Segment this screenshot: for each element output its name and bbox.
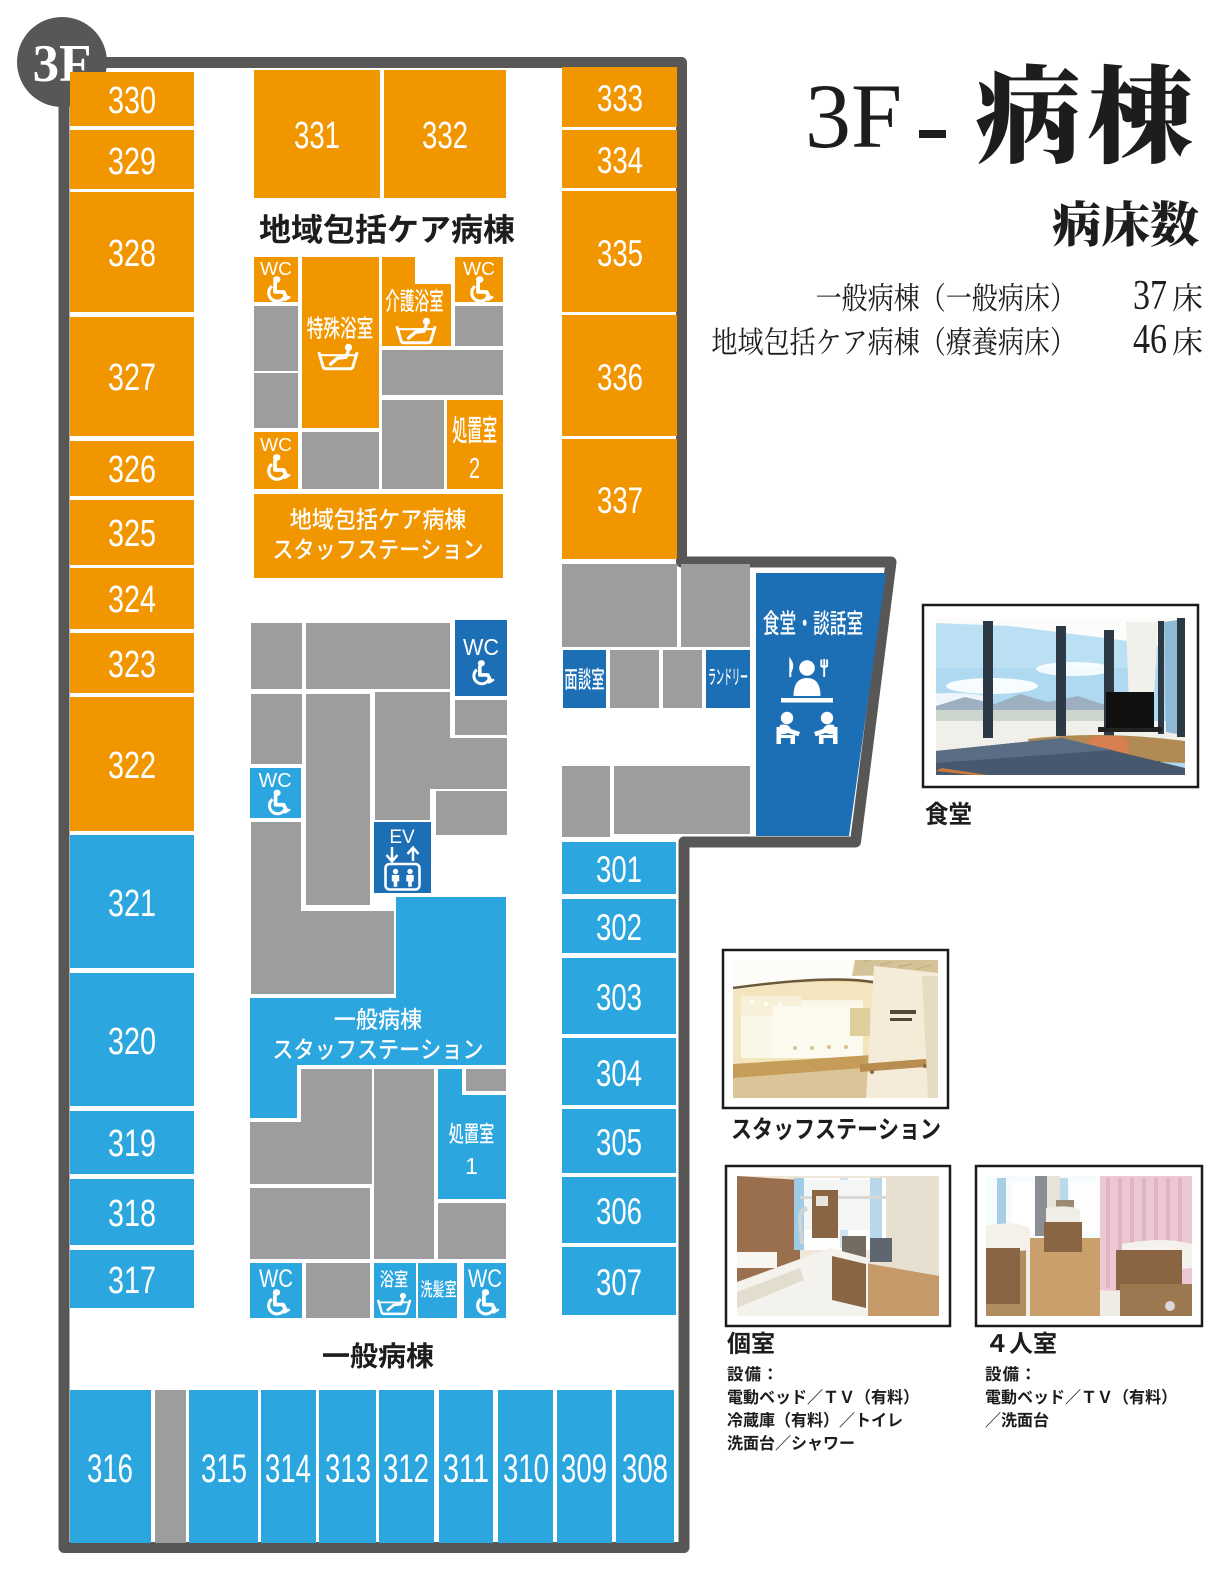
svg-text:336: 336 (597, 357, 643, 398)
svg-text:WC: WC (468, 1265, 502, 1293)
svg-text:323: 323 (108, 644, 156, 686)
svg-text:WC: WC (259, 1265, 293, 1293)
svg-text:324: 324 (108, 579, 156, 621)
svg-text:3F: 3F (805, 65, 902, 167)
svg-text:311: 311 (443, 1447, 489, 1491)
svg-text:329: 329 (108, 141, 156, 183)
svg-text:2: 2 (469, 453, 480, 485)
svg-text:303: 303 (596, 977, 642, 1018)
svg-text:337: 337 (597, 480, 643, 521)
svg-text:319: 319 (108, 1123, 156, 1165)
svg-text:46: 46 (1133, 317, 1167, 363)
svg-text:331: 331 (294, 115, 340, 157)
svg-text:307: 307 (596, 1262, 642, 1303)
svg-text:328: 328 (108, 233, 156, 275)
svg-text:315: 315 (201, 1447, 247, 1491)
svg-text:322: 322 (108, 745, 156, 787)
svg-text:313: 313 (325, 1447, 371, 1491)
svg-text:325: 325 (108, 513, 156, 555)
svg-text:WC: WC (260, 435, 292, 455)
svg-text:309: 309 (561, 1447, 607, 1491)
svg-text:305: 305 (596, 1122, 642, 1163)
svg-text:317: 317 (108, 1260, 156, 1302)
svg-text:1: 1 (465, 1153, 478, 1179)
svg-text:WC: WC (463, 634, 499, 660)
svg-text:332: 332 (422, 115, 468, 157)
svg-text:306: 306 (596, 1191, 642, 1232)
svg-text:326: 326 (108, 449, 156, 491)
svg-text:335: 335 (597, 233, 643, 274)
svg-text:318: 318 (108, 1193, 156, 1235)
svg-text:WC: WC (259, 770, 292, 792)
svg-text:327: 327 (108, 357, 156, 399)
svg-text:333: 333 (597, 78, 643, 119)
svg-text:312: 312 (383, 1447, 429, 1491)
svg-text:304: 304 (596, 1053, 642, 1094)
svg-text:308: 308 (622, 1447, 668, 1491)
svg-text:WC: WC (463, 259, 495, 279)
svg-text:EV: EV (389, 827, 415, 848)
svg-text:316: 316 (87, 1447, 133, 1491)
svg-text:301: 301 (596, 849, 642, 890)
svg-text:330: 330 (108, 80, 156, 122)
svg-text:334: 334 (597, 140, 643, 181)
svg-text:320: 320 (108, 1021, 156, 1063)
svg-text:302: 302 (596, 907, 642, 948)
svg-text:314: 314 (265, 1447, 311, 1491)
svg-text:321: 321 (108, 883, 156, 925)
svg-text:37: 37 (1133, 273, 1167, 319)
svg-text:310: 310 (503, 1447, 549, 1491)
svg-text:WC: WC (260, 259, 292, 279)
